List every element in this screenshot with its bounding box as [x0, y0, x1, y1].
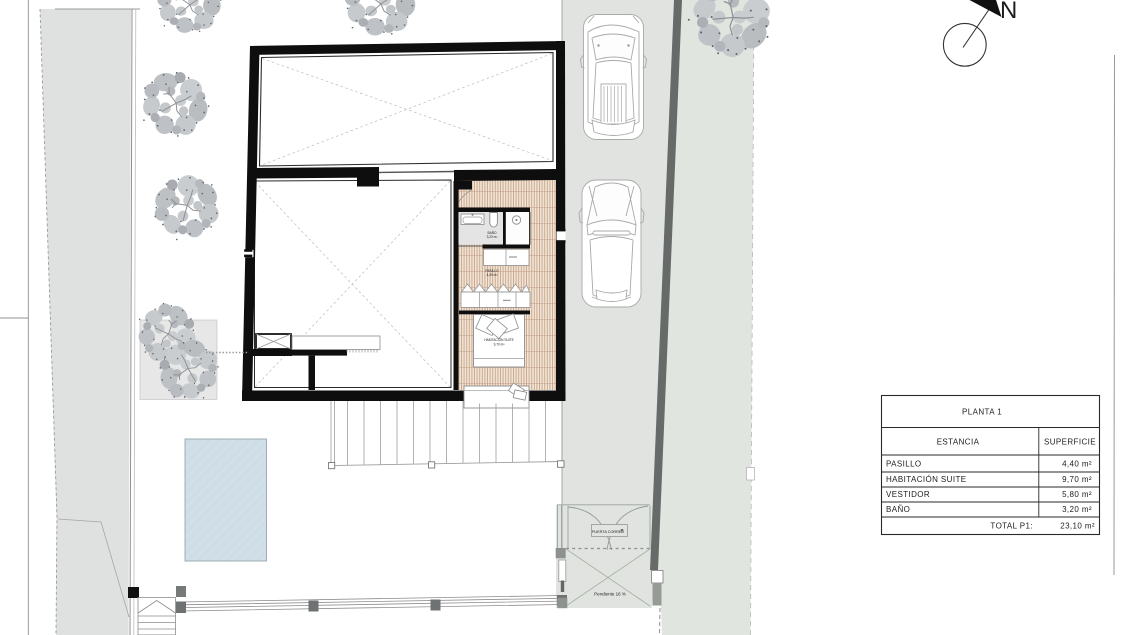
svg-text:VESTIDOR: VESTIDOR [886, 490, 930, 499]
svg-text:9,70 m²: 9,70 m² [1062, 475, 1092, 484]
svg-text:PUERTA CORRED: PUERTA CORRED [592, 530, 625, 534]
svg-text:3,20 m²: 3,20 m² [1062, 505, 1092, 514]
svg-text:4,40 m²: 4,40 m² [1062, 460, 1092, 469]
svg-text:ESTANCIA: ESTANCIA [937, 438, 980, 447]
svg-text:5,80 m²: 5,80 m² [1062, 490, 1092, 499]
svg-text:TOTAL P1:: TOTAL P1: [990, 522, 1033, 531]
svg-text:SUPERFICIE: SUPERFICIE [1044, 438, 1096, 447]
svg-text:3,20 m²: 3,20 m² [487, 235, 498, 239]
svg-text:9,70 m²: 9,70 m² [494, 343, 505, 347]
svg-text:HABITACIÓN SUITE: HABITACIÓN SUITE [484, 337, 514, 342]
svg-text:Pendiente 16 %: Pendiente 16 % [594, 592, 626, 597]
svg-text:N: N [1000, 0, 1017, 24]
svg-text:PASILLO: PASILLO [886, 460, 922, 469]
svg-text:23,10 m²: 23,10 m² [1060, 522, 1095, 531]
svg-text:BAÑO: BAÑO [886, 505, 910, 514]
svg-text:PLANTA 1: PLANTA 1 [962, 408, 1002, 417]
svg-text:4,40 m²: 4,40 m² [487, 273, 498, 277]
svg-text:HABITACIÓN SUITE: HABITACIÓN SUITE [886, 475, 966, 484]
